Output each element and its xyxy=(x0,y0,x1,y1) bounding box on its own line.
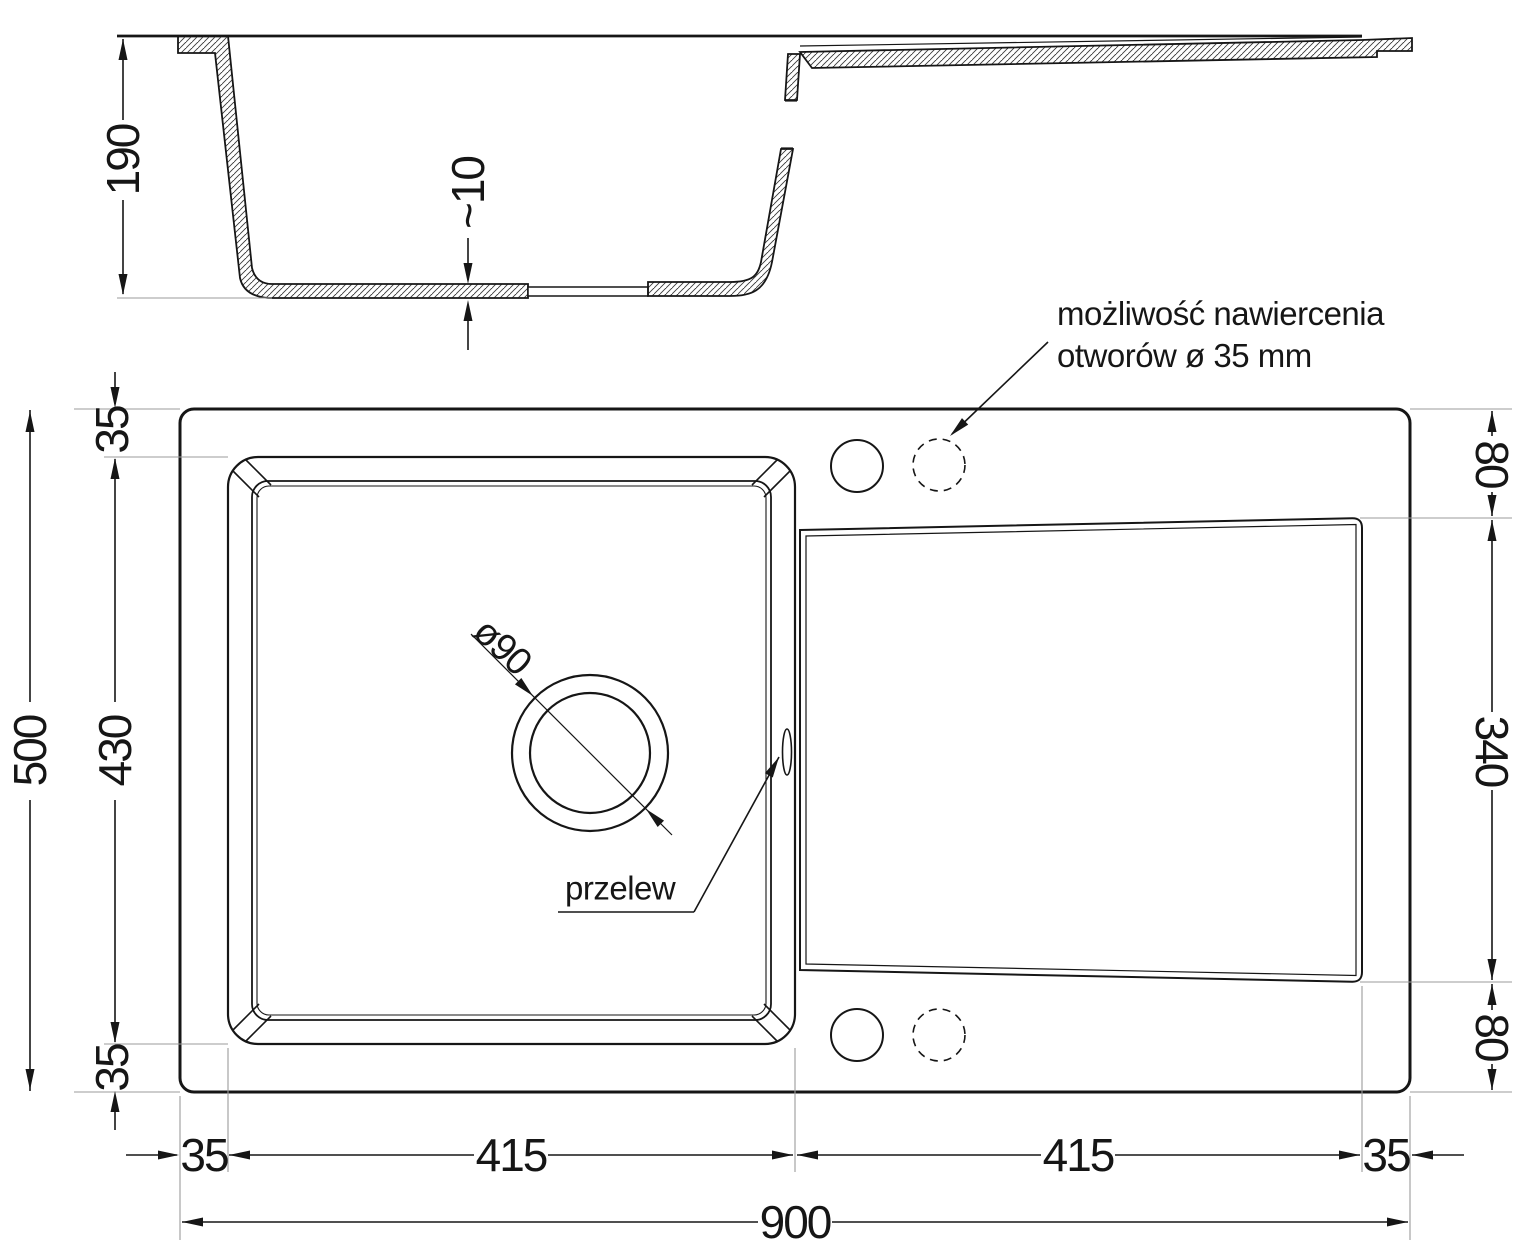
dim-80-bottom: 80 xyxy=(1466,984,1518,1090)
sink-drawing-svg: 190 ~10 xyxy=(0,0,1526,1248)
dim-900: 900 xyxy=(182,1196,1408,1248)
dim-label-500: 500 xyxy=(4,715,56,786)
dim-label-35-bottom: 35 xyxy=(86,1044,138,1092)
dim-340: 340 xyxy=(1466,520,1518,980)
dim-35-left: 35 xyxy=(126,1129,228,1181)
dim-label-80-top: 80 xyxy=(1466,440,1518,488)
dim-section-depth-190: 190 xyxy=(97,39,149,295)
dim-35-right: 35 xyxy=(1362,1129,1464,1181)
dim-label-430: 430 xyxy=(89,715,141,786)
dim-label-415-right: 415 xyxy=(1043,1129,1114,1181)
dim-label-340: 340 xyxy=(1466,716,1518,787)
section-drain-recess xyxy=(528,287,648,296)
section-drainboard-hatch xyxy=(800,38,1412,68)
dim-415-right: 415 xyxy=(797,1129,1360,1181)
overflow-label: przelew xyxy=(565,870,676,907)
dim-35-top: 35 xyxy=(86,372,138,479)
plan-view: ø90 przelew możliwość nawiercenia otworó… xyxy=(180,295,1410,1092)
dim-label-190: 190 xyxy=(97,124,149,195)
dim-label-35-top: 35 xyxy=(86,406,138,454)
drill-note-line1: możliwość nawiercenia xyxy=(1057,295,1385,332)
section-right-wall-lower-hatch xyxy=(648,149,793,296)
dim-label-10: ~10 xyxy=(442,157,494,229)
dim-section-bottom-10: ~10 xyxy=(442,157,494,350)
dim-label-80-bottom: 80 xyxy=(1466,1013,1518,1061)
section-right-wall-upper-hatch xyxy=(785,54,800,100)
dim-label-35-left: 35 xyxy=(180,1129,228,1181)
dim-label-35-right: 35 xyxy=(1362,1129,1410,1181)
dim-label-900: 900 xyxy=(760,1196,831,1248)
dim-35-bottom: 35 xyxy=(86,1044,138,1130)
technical-drawing-page: 190 ~10 xyxy=(0,0,1526,1248)
dim-415-left: 415 xyxy=(229,1129,793,1181)
drill-note-line2: otworów ø 35 mm xyxy=(1057,337,1312,374)
overflow-hole xyxy=(783,729,792,775)
dim-80-top: 80 xyxy=(1466,411,1518,516)
dim-430: 430 xyxy=(89,459,141,1043)
dim-500: 500 xyxy=(4,410,56,1091)
dim-label-415-left: 415 xyxy=(476,1129,547,1181)
